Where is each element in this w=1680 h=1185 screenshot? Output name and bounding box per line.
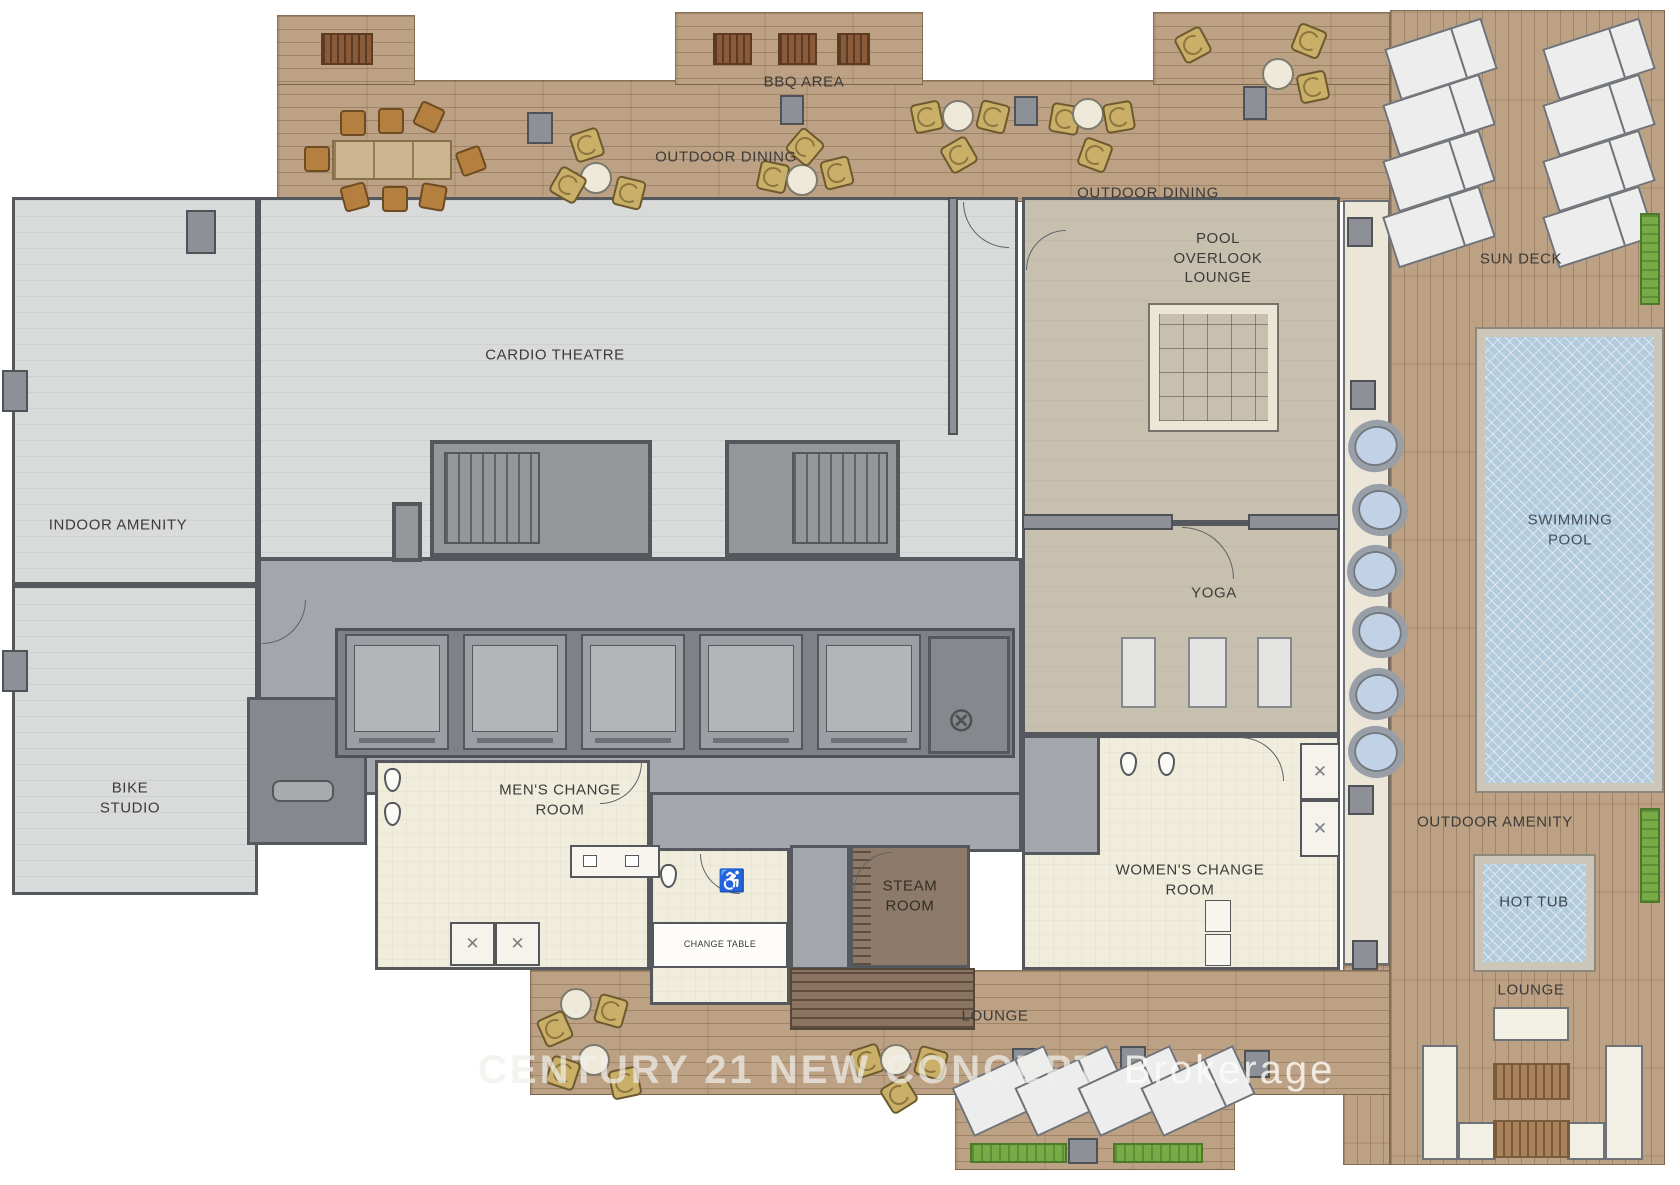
room-yoga <box>1022 523 1340 735</box>
outdoor-sofa <box>1605 1045 1643 1160</box>
room-label-outdoor-dining-west: OUTDOOR DINING <box>655 147 797 167</box>
dining-chair <box>382 186 408 212</box>
shower-stall: ✕ <box>495 922 540 966</box>
shower-x-icon: ✕ <box>1313 819 1327 839</box>
outdoor-sofa <box>1493 1007 1569 1041</box>
shower-x-icon: ✕ <box>1313 762 1327 782</box>
room-label-indoor-amenity: INDOOR AMENITY <box>49 515 187 535</box>
column <box>2 650 28 692</box>
stair-flight-west <box>444 452 540 544</box>
room-label-pool-overlook-lounge: POOL OVERLOOK LOUNGE <box>1174 229 1263 288</box>
shower-stall: ✕ <box>450 922 495 966</box>
outdoor-sofa <box>1458 1122 1496 1160</box>
bbq-grill <box>837 33 870 65</box>
patio-table <box>1072 98 1104 130</box>
corridor-change-rooms <box>650 792 1022 852</box>
dining-chair <box>304 146 330 172</box>
column <box>527 112 553 144</box>
wall-stub <box>948 197 958 435</box>
planter <box>1640 213 1660 305</box>
elevator-car <box>345 634 449 750</box>
patio-chair <box>1295 69 1331 105</box>
room-label-yoga: YOGA <box>1191 583 1237 603</box>
room-label-bike-studio: BIKE STUDIO <box>100 779 160 818</box>
column <box>186 210 216 254</box>
room-label-change-table: CHANGE TABLE <box>684 939 756 951</box>
shower-x-icon: ✕ <box>465 934 479 954</box>
column <box>1348 785 1374 815</box>
locker <box>1205 900 1231 932</box>
room-label-cardio-theatre: CARDIO THEATRE <box>485 345 625 365</box>
brokerage-watermark: CENTURY 21 NEW CONCEPTBrokerage <box>478 1048 1335 1093</box>
column <box>1350 380 1376 410</box>
sink-basin <box>625 855 639 867</box>
coffee-table <box>1493 1063 1570 1100</box>
column <box>2 370 28 412</box>
shower-x-icon: ✕ <box>510 934 524 954</box>
dining-table <box>332 140 452 180</box>
womens-vestibule <box>1022 735 1100 855</box>
room-label-mens-change-room: MEN'S CHANGE ROOM <box>499 781 621 820</box>
planter <box>1113 1143 1203 1163</box>
patio-table <box>942 100 974 132</box>
closet <box>392 502 422 562</box>
elevator-car <box>817 634 921 750</box>
planter <box>1640 808 1660 903</box>
room-label-outdoor-amenity: OUTDOOR AMENITY <box>1417 812 1573 832</box>
room-label-hot-tub: HOT TUB <box>1499 892 1569 912</box>
patio-chair <box>909 99 945 135</box>
outdoor-sofa <box>1422 1045 1458 1160</box>
room-label-swimming-pool: SWIMMING POOL <box>1515 511 1625 550</box>
floor-plan: ⊗ ✕ ✕ ♿ ✕ ✕ <box>0 0 1680 1185</box>
elevator-car <box>463 634 567 750</box>
bbq-grill <box>713 33 752 65</box>
column <box>780 95 804 125</box>
column <box>1352 940 1378 970</box>
column <box>1068 1138 1098 1164</box>
patio-table <box>1262 58 1294 90</box>
locker <box>1205 934 1231 966</box>
elevator-car <box>699 634 803 750</box>
garbage-chute-icon: ⊗ <box>947 700 976 740</box>
yoga-wall-stub <box>1248 514 1340 530</box>
elevator-car <box>581 634 685 750</box>
stair-flight-east <box>792 452 888 544</box>
yoga-mat <box>1257 637 1292 708</box>
shower-stall: ✕ <box>1300 743 1340 800</box>
bbq-grill <box>778 33 817 65</box>
patio-table <box>786 164 818 196</box>
planter <box>970 1143 1067 1163</box>
corridor-steam <box>790 845 850 970</box>
room-label-lounge-right: LOUNGE <box>1498 980 1565 1000</box>
yoga-mat <box>1188 637 1227 708</box>
column <box>1243 86 1267 120</box>
patio-chair <box>1102 100 1137 135</box>
overlook-skylight <box>1150 305 1277 430</box>
room-label-sun-deck: SUN DECK <box>1480 249 1562 269</box>
column <box>1347 217 1373 247</box>
room-label-outdoor-dining-east: OUTDOOR DINING <box>1077 183 1219 203</box>
wheelchair-icon: ♿ <box>718 868 745 894</box>
swimming-pool <box>1477 329 1662 791</box>
room-label-steam-room: STEAM ROOM <box>883 877 938 916</box>
outdoor-sofa <box>1567 1122 1605 1160</box>
room-label-lounge-bottom: LOUNGE <box>962 1006 1029 1026</box>
watermark-brand: CENTURY 21 NEW CONCEPT <box>478 1048 1102 1092</box>
room-label-bbq-area: BBQ AREA <box>764 72 845 92</box>
dining-chair <box>418 182 448 212</box>
coffee-table <box>1493 1120 1570 1158</box>
hot-tub <box>1475 856 1594 970</box>
dining-chair <box>340 110 366 136</box>
yoga-mat <box>1121 637 1156 708</box>
watermark-suffix: Brokerage <box>1102 1048 1336 1092</box>
room-label-womens-change-room: WOMEN'S CHANGE ROOM <box>1116 861 1265 900</box>
bbq-grill <box>321 33 373 65</box>
yoga-wall-stub <box>1022 514 1173 530</box>
shower-stall: ✕ <box>1300 800 1340 857</box>
dining-chair <box>378 108 404 134</box>
sink-basin <box>583 855 597 867</box>
room-bike-studio <box>12 585 258 895</box>
amphitheatre-steps <box>790 968 975 1030</box>
column <box>1014 96 1038 126</box>
bench <box>272 780 334 802</box>
